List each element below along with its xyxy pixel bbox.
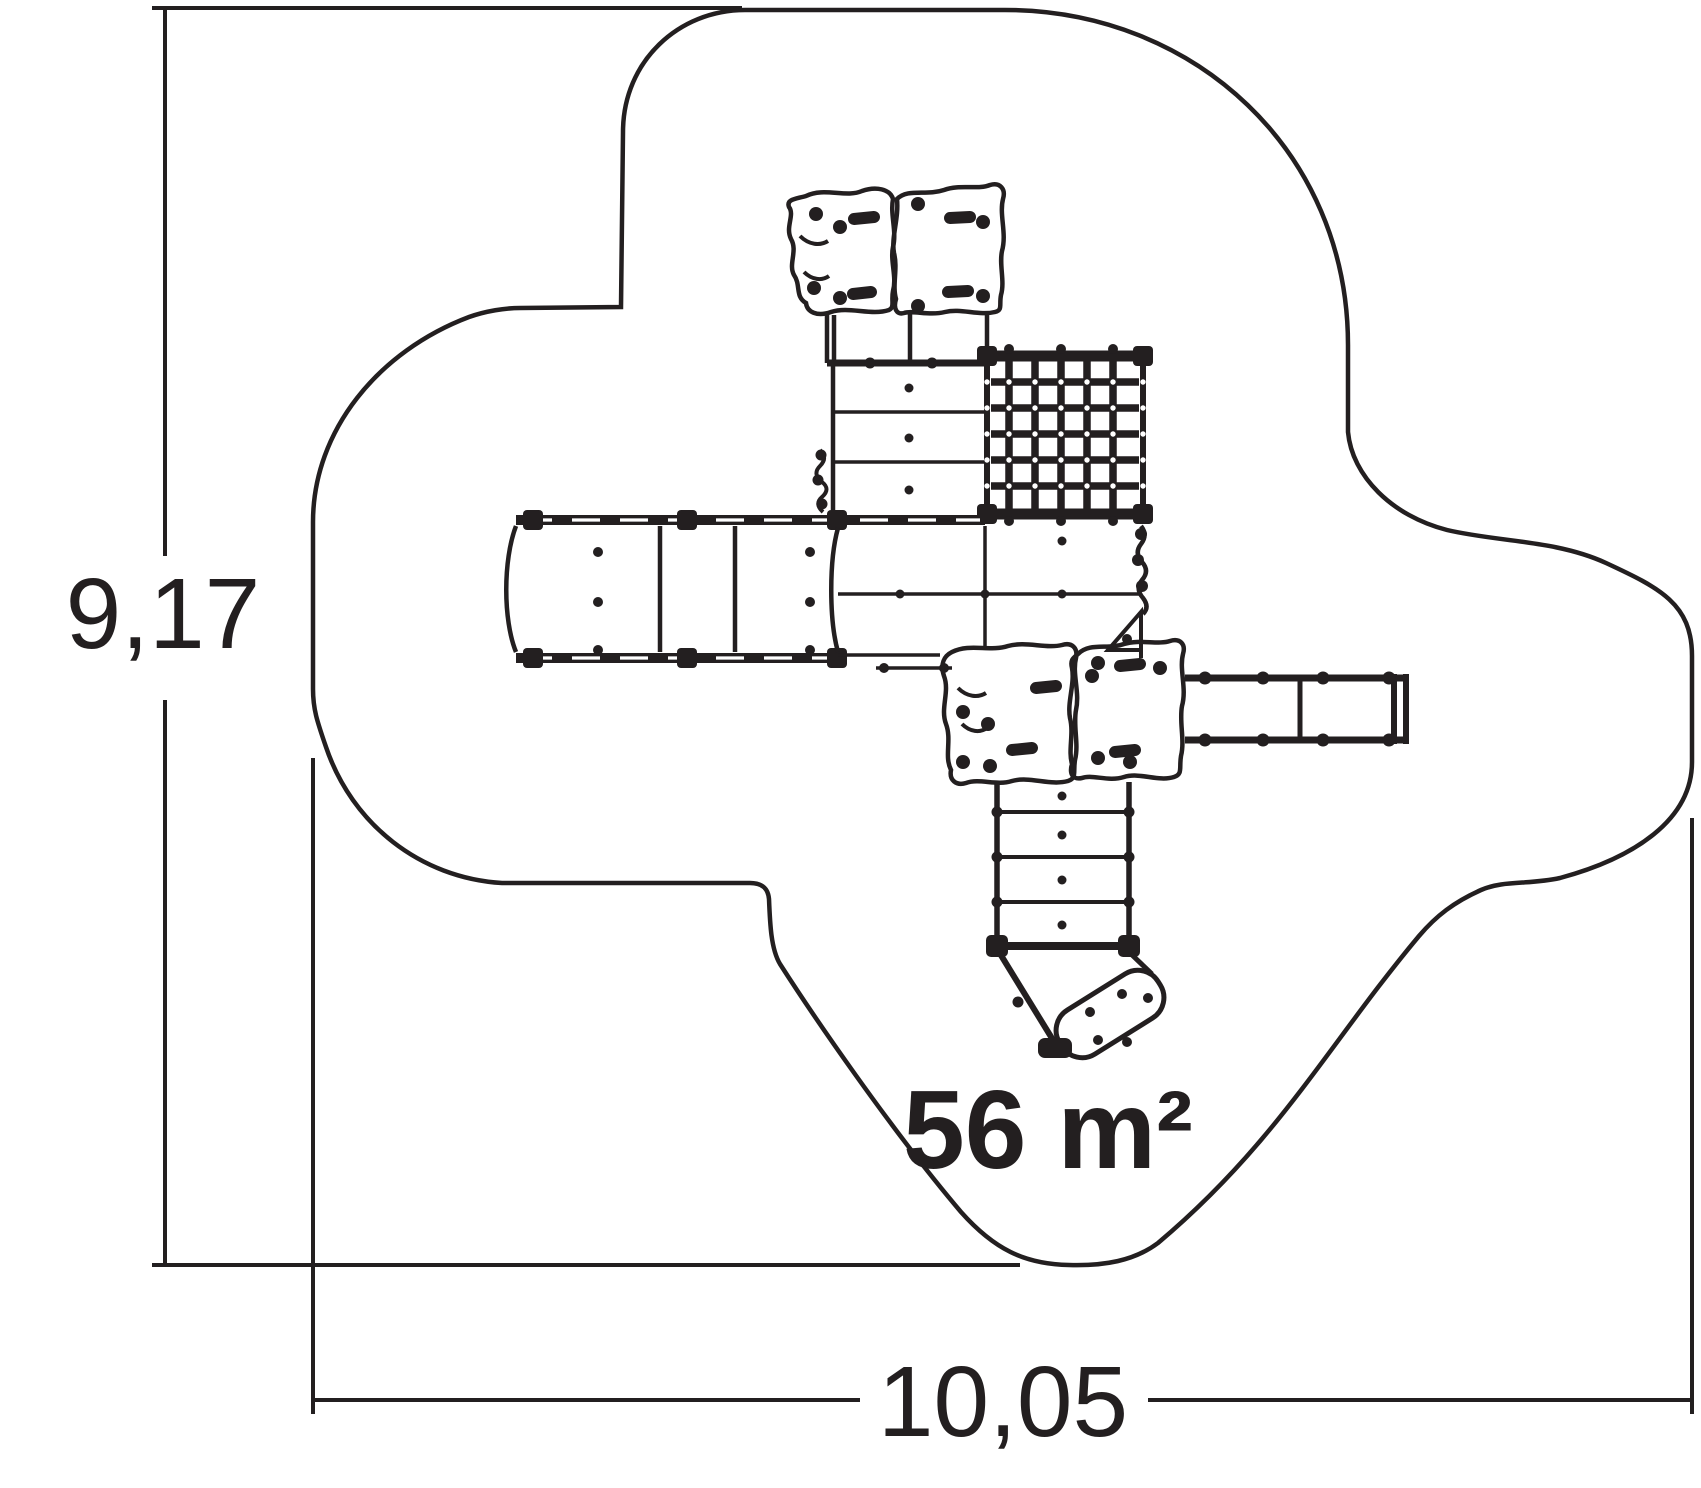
bridge-walkway bbox=[506, 510, 985, 668]
bridge-end-arc bbox=[506, 526, 516, 652]
lower-play-panels bbox=[942, 640, 1183, 784]
horizontal-ladder-arm bbox=[1185, 672, 1407, 747]
stairs-dots bbox=[986, 792, 1140, 958]
net-mesh bbox=[991, 361, 1139, 509]
equipment-structure bbox=[506, 184, 1407, 1066]
top-play-panels bbox=[788, 184, 1003, 363]
height-dimension-label: 9,17 bbox=[66, 558, 261, 670]
top-panel-legs bbox=[827, 312, 987, 363]
exit-left-diagonal bbox=[999, 952, 1053, 1040]
width-dimension-label: 10,05 bbox=[878, 1346, 1128, 1458]
playground-plan-svg: 9,17 10,05 56 m² bbox=[0, 0, 1701, 1488]
climbing-net bbox=[977, 344, 1153, 526]
plan-drawing-canvas: 9,17 10,05 56 m² bbox=[0, 0, 1701, 1488]
main-platform bbox=[831, 526, 1148, 673]
top-panel-left-inner-curl-2 bbox=[804, 272, 829, 279]
slide-exit bbox=[999, 952, 1173, 1067]
tower-ladder bbox=[813, 358, 988, 519]
bridge-rail-dashes bbox=[524, 520, 980, 658]
lower-panel-inner-curl-1 bbox=[958, 688, 986, 696]
bridge-deck-dots bbox=[523, 510, 847, 668]
exit-apex-connector bbox=[1038, 1038, 1072, 1058]
area-label: 56 m² bbox=[903, 1068, 1193, 1192]
ladder-rung-knobs bbox=[1199, 672, 1396, 747]
top-panel-left-inner-curl-1 bbox=[800, 236, 828, 244]
top-panel-slots bbox=[853, 217, 970, 294]
staircase bbox=[986, 782, 1140, 957]
platform-left-edge bbox=[831, 528, 838, 652]
